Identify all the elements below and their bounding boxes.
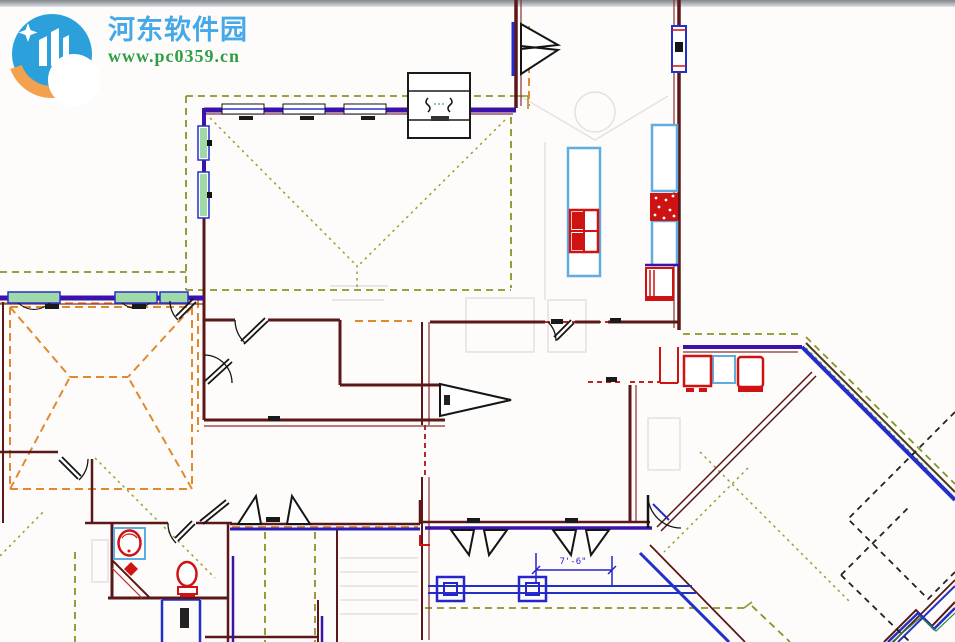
walls-purple	[0, 108, 802, 642]
garage-dashed-outline	[841, 412, 955, 642]
washer	[684, 356, 711, 392]
french-doors-porch	[451, 530, 609, 555]
dimension-label: 7'-6"	[559, 557, 586, 567]
toilet	[178, 562, 198, 597]
cad-viewer-screen: 河东软件园 www.pc0359.cn	[0, 0, 955, 642]
fireplace	[408, 73, 470, 138]
bath-sink	[119, 531, 141, 556]
porch-post	[519, 577, 546, 601]
window-kitchen-right-wall	[672, 26, 686, 72]
corner-shower	[112, 562, 142, 598]
pantry-door	[648, 495, 681, 528]
roof-line-olive-dashed	[0, 96, 955, 642]
dryer	[738, 357, 763, 392]
cooktop	[570, 210, 598, 252]
laundry-sink	[713, 356, 735, 383]
refrigerator	[645, 265, 679, 301]
hall-swing-door	[440, 384, 511, 416]
window-top-wall	[222, 104, 386, 114]
french-door-top-center	[521, 24, 558, 74]
window-family-left-wall	[198, 126, 212, 218]
floor-plan-canvas[interactable]: 7'-6"	[0, 0, 955, 642]
cased-opening-red	[420, 347, 678, 545]
range	[650, 193, 678, 221]
porch-post	[437, 577, 464, 601]
closet-shelf-mark	[180, 608, 189, 628]
